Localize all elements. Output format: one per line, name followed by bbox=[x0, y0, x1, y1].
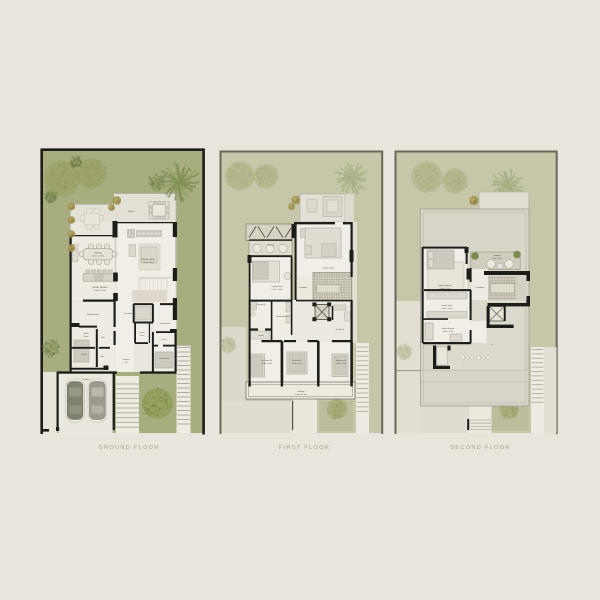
svg-text:3.28m x 2.70m: 3.28m x 2.70m bbox=[442, 330, 454, 333]
svg-text:Shared Bathroom: Shared Bathroom bbox=[276, 315, 291, 318]
svg-text:Bedroom 03: Bedroom 03 bbox=[262, 359, 272, 362]
svg-text:Driver's: Driver's bbox=[81, 353, 87, 356]
svg-text:3.81m x 4.79m: 3.81m x 4.79m bbox=[92, 255, 104, 258]
svg-text:Bath: Bath bbox=[101, 336, 105, 339]
svg-text:Ensuite 03: Ensuite 03 bbox=[257, 303, 266, 306]
svg-text:Bedroom 01: Bedroom 01 bbox=[336, 359, 346, 362]
svg-text:Maid's: Maid's bbox=[83, 332, 88, 335]
svg-text:Dining: Dining bbox=[95, 252, 102, 255]
svg-text:SECOND FLOOR: SECOND FLOOR bbox=[450, 445, 511, 451]
svg-text:Antenna: Antenna bbox=[494, 254, 501, 257]
svg-text:Balcony: Balcony bbox=[298, 390, 305, 393]
svg-text:Master Ensuite: Master Ensuite bbox=[442, 327, 454, 330]
svg-text:FIRST FLOOR: FIRST FLOOR bbox=[279, 445, 330, 451]
svg-text:Circulation: Circulation bbox=[299, 286, 308, 289]
svg-text:4.70m x 4.55m: 4.70m x 4.55m bbox=[271, 288, 283, 291]
svg-text:GROUND FLOOR: GROUND FLOOR bbox=[98, 445, 159, 451]
svg-text:Family Living: Family Living bbox=[141, 258, 155, 261]
svg-text:Circulation: Circulation bbox=[124, 312, 133, 315]
svg-text:Shown Kitchen: Shown Kitchen bbox=[87, 313, 100, 316]
svg-text:5.10m x 5.05m: 5.10m x 5.05m bbox=[142, 261, 154, 264]
svg-text:Powder: Powder bbox=[139, 331, 145, 334]
svg-text:Ensuite 01: Ensuite 01 bbox=[336, 328, 345, 331]
svg-text:Entrance: Entrance bbox=[123, 358, 130, 361]
svg-text:Family Living: Family Living bbox=[322, 267, 333, 270]
svg-text:Closet: Closet bbox=[162, 338, 167, 341]
svg-text:Terrace: Terrace bbox=[128, 210, 136, 213]
svg-text:Bath: Bath bbox=[100, 355, 104, 358]
svg-text:Master Closet: Master Closet bbox=[441, 304, 453, 307]
svg-text:Closet: Closet bbox=[258, 334, 264, 337]
svg-text:3.20m x 3.05m: 3.20m x 3.05m bbox=[441, 307, 453, 310]
svg-text:Board Ensuite: Board Ensuite bbox=[160, 322, 171, 325]
svg-text:Room: Room bbox=[140, 334, 145, 337]
svg-text:Garage: Garage bbox=[83, 378, 91, 381]
svg-text:Circulation: Circulation bbox=[476, 286, 485, 289]
svg-text:3.35m x 5.79m: 3.35m x 5.79m bbox=[94, 289, 106, 292]
svg-text:Room: Room bbox=[84, 335, 89, 338]
svg-text:Balcony: Balcony bbox=[268, 244, 274, 247]
svg-text:Family Room: Family Room bbox=[271, 285, 283, 288]
svg-text:Bedroom 02: Bedroom 02 bbox=[292, 359, 302, 362]
svg-text:Family Kitchen: Family Kitchen bbox=[92, 286, 108, 289]
svg-text:Guest Room: Guest Room bbox=[159, 357, 170, 360]
svg-text:Master Bedroom: Master Bedroom bbox=[438, 284, 452, 287]
